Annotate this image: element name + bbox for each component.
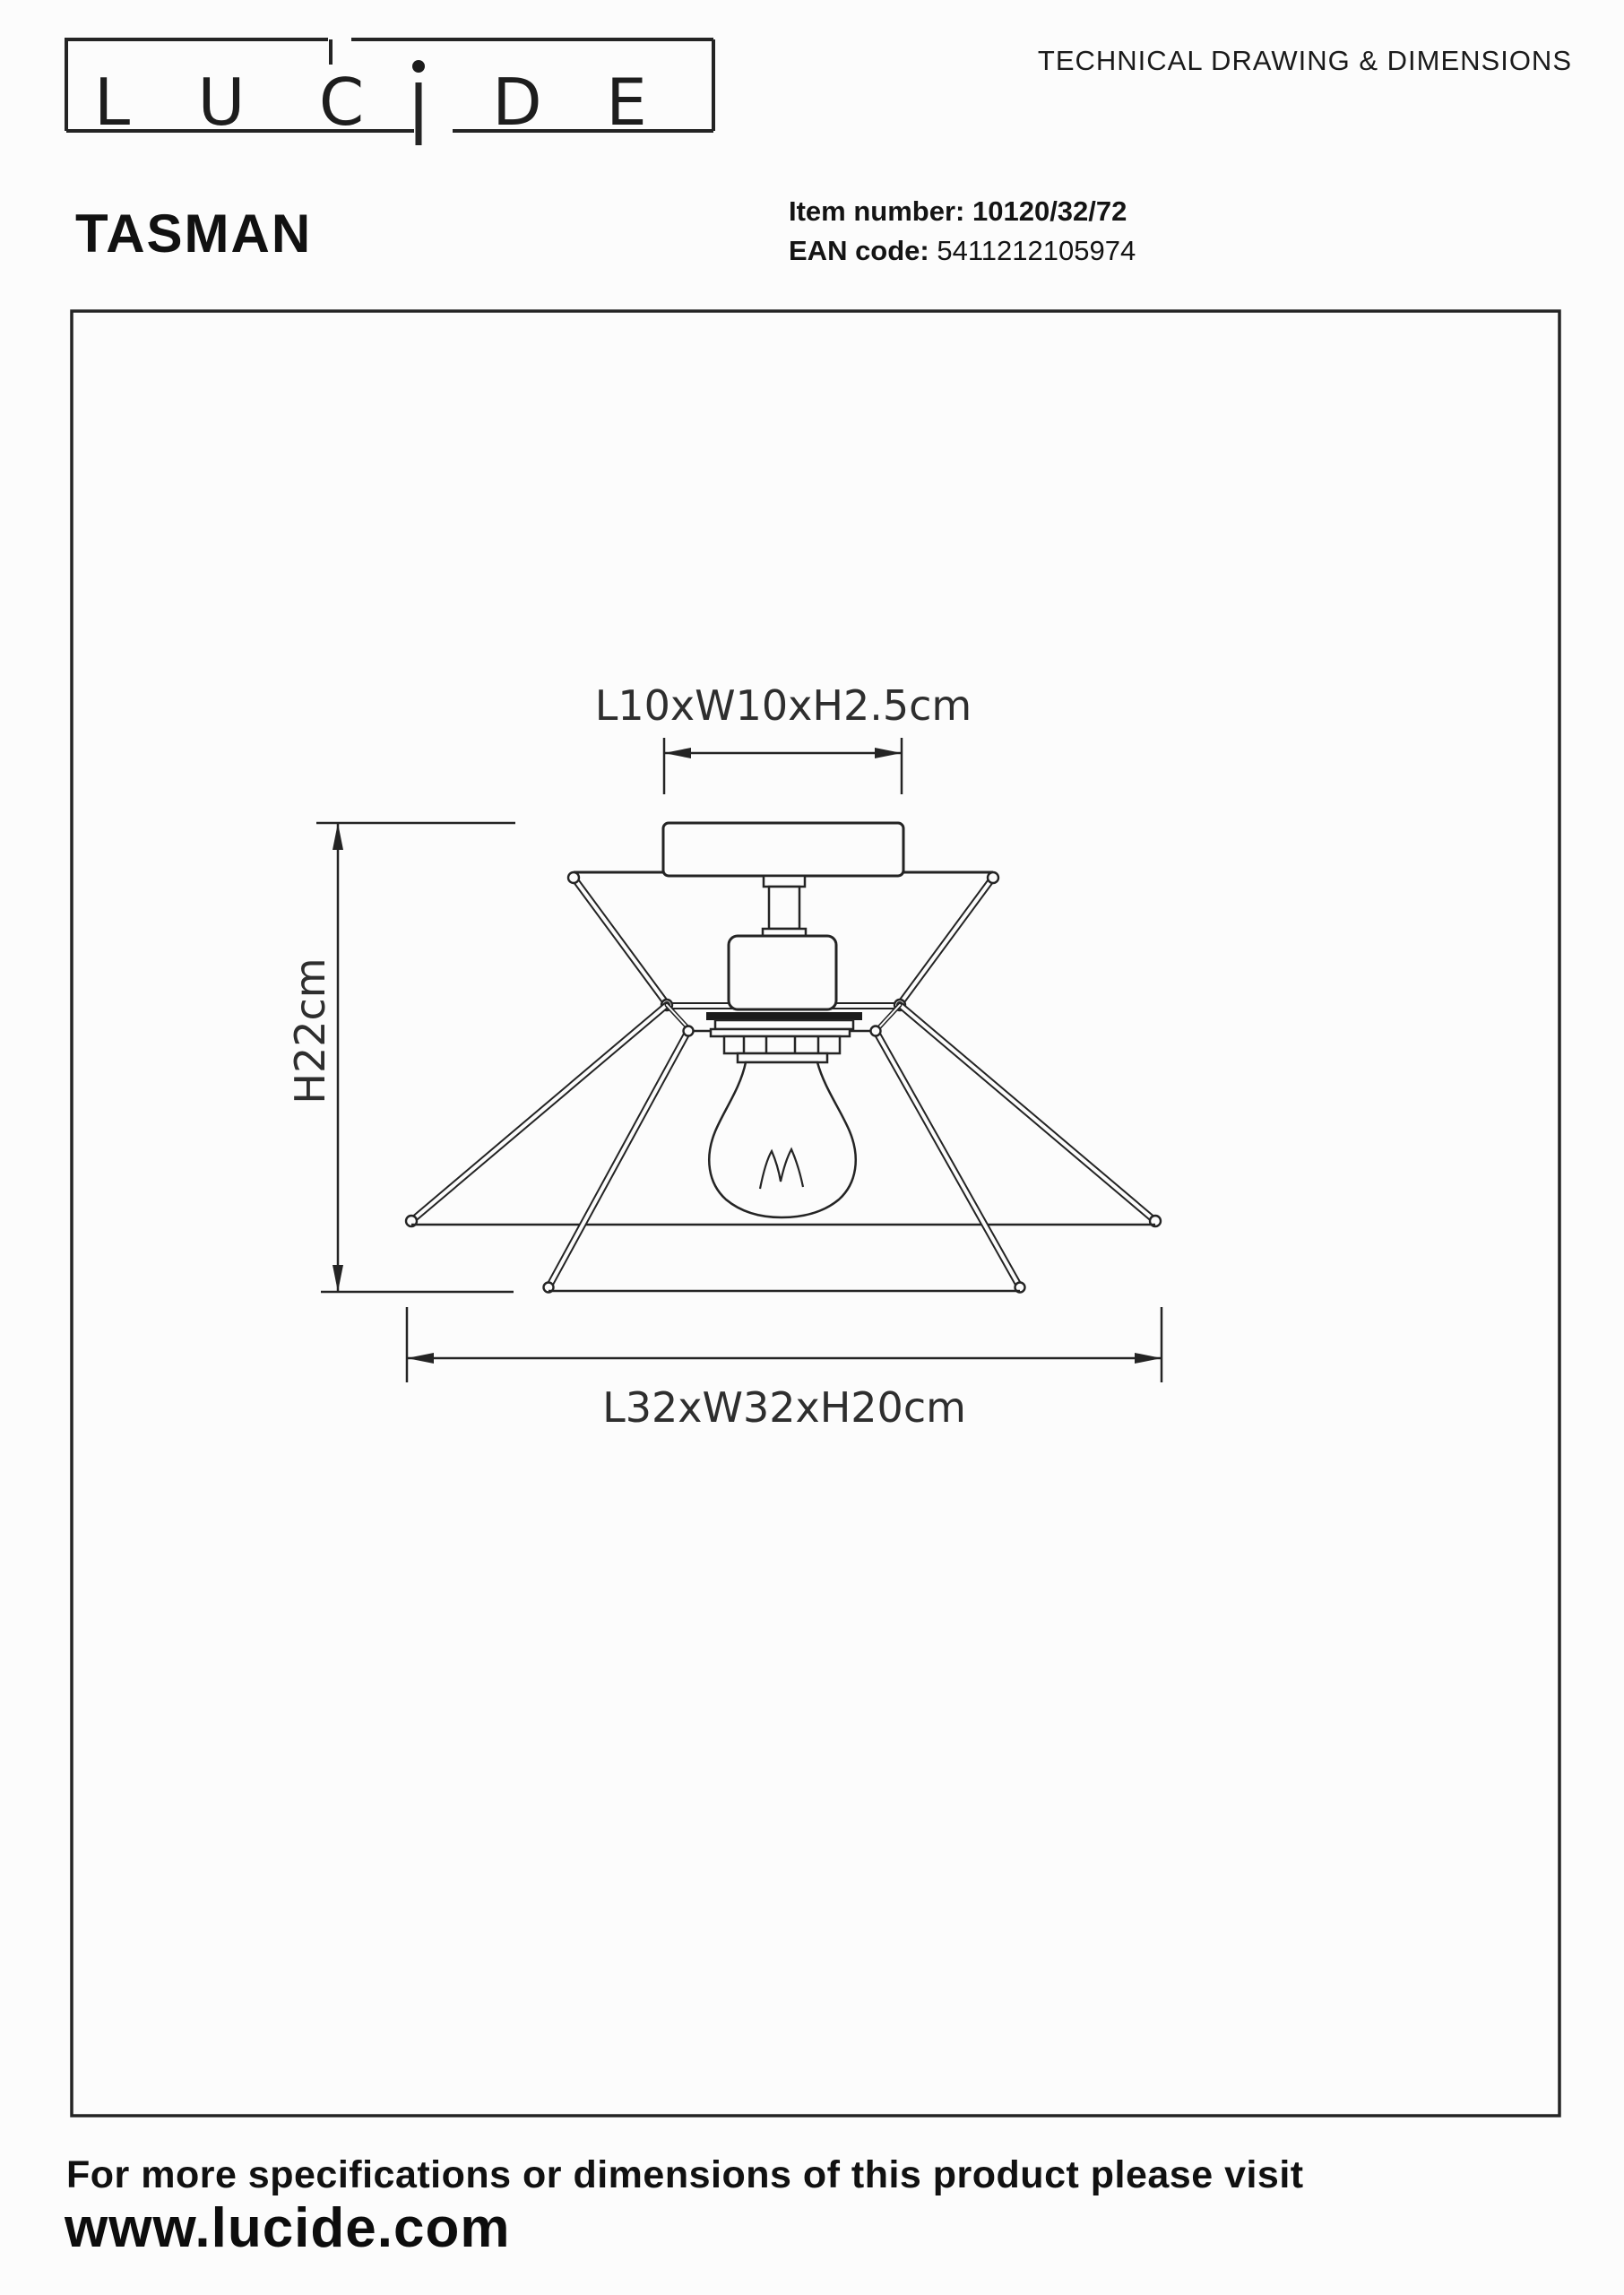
- lamp-stem: [763, 876, 806, 938]
- dim-shade-label: L32xW32xH20cm: [602, 1383, 966, 1432]
- item-number-label: Item number:: [789, 195, 964, 227]
- doc-title: TECHNICAL DRAWING & DIMENSIONS: [1038, 45, 1572, 77]
- lamp-socket-rings: [706, 1012, 862, 1062]
- dim-canopy-lines: [664, 738, 902, 794]
- dim-canopy-label: L10xW10xH2.5cm: [595, 681, 972, 730]
- sheet-line-art: [0, 0, 1624, 2295]
- ean-code-value: 5411212105974: [937, 235, 1136, 266]
- lamp-canopy: [574, 823, 993, 876]
- ean-code-row: EAN code: 5411212105974: [789, 235, 1136, 267]
- logo-letter-u: U: [198, 65, 246, 140]
- footer-note: For more specifications or dimensions of…: [66, 2153, 1304, 2197]
- product-name: TASMAN: [75, 203, 312, 264]
- ean-code-label: EAN code:: [789, 235, 929, 266]
- item-number-value: 10120/32/72: [972, 195, 1127, 227]
- logo-letter-l: L: [94, 65, 130, 140]
- lamp-bulb: [709, 1062, 856, 1217]
- logo-letter-c: C: [319, 65, 364, 140]
- dim-height-label: H22cm: [286, 957, 334, 1104]
- logo-letter-d: D: [492, 65, 541, 140]
- dim-shade-lines: [407, 1307, 1162, 1382]
- technical-drawing-sheet: L U C D E TECHNICAL DRAWING & DIMENSIONS…: [0, 0, 1624, 2295]
- item-number-row: Item number: 10120/32/72: [789, 195, 1127, 228]
- logo-letter-e: E: [606, 65, 647, 140]
- footer-website: www.lucide.com: [65, 2196, 510, 2260]
- lamp-socket-body: [729, 936, 836, 1009]
- logo-letter-i-icon: [412, 60, 425, 145]
